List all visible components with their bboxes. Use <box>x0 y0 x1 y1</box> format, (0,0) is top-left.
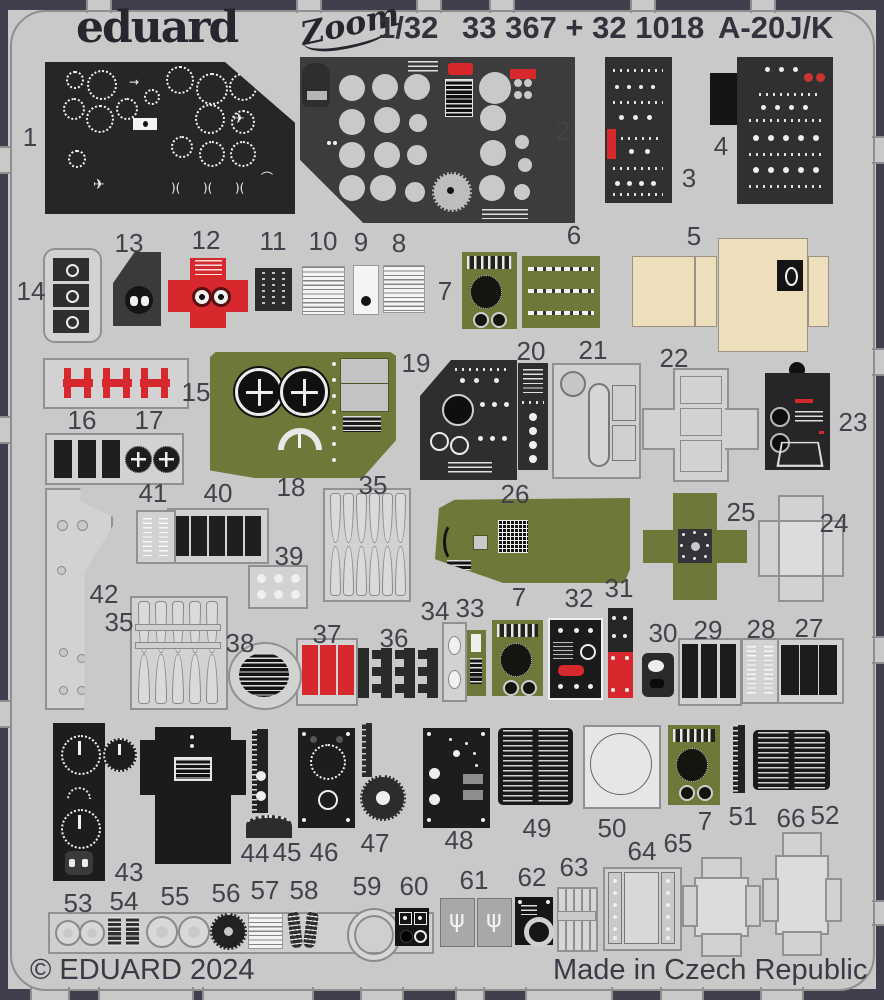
pe-part-36-clip <box>418 648 438 698</box>
knob-pair <box>800 645 818 695</box>
red-knob-pair <box>302 645 318 695</box>
part-number-label: 5 <box>687 223 701 249</box>
red-clamp <box>63 368 93 398</box>
part-number-label: 58 <box>290 877 319 903</box>
switch-dot <box>765 67 770 72</box>
door-plate <box>340 358 389 412</box>
dial-knob <box>125 446 152 473</box>
instrument-cutout <box>518 158 532 172</box>
fret-tab <box>360 987 404 1000</box>
knob <box>679 785 695 801</box>
switch-dot <box>775 105 780 110</box>
mini-arc <box>67 787 91 799</box>
placard-dot <box>361 296 371 306</box>
pe-part-52-66-data-placard <box>753 730 830 790</box>
pe-part-46-panel <box>298 728 355 828</box>
instrument-cutout <box>339 75 365 101</box>
part-number-label: 20 <box>517 338 546 364</box>
instrument-cutout <box>374 142 400 168</box>
oval-window <box>648 660 664 672</box>
red-lever <box>159 518 168 556</box>
stencil-text <box>523 369 543 393</box>
belt-crossbar <box>135 624 221 631</box>
switch-dot <box>504 402 509 407</box>
knob-pair <box>54 440 72 478</box>
gauge-dial-print <box>116 98 138 120</box>
part-number-label: 7 <box>438 278 452 304</box>
box-flap <box>778 573 824 602</box>
switch-dot <box>645 149 650 154</box>
pe-part-22-fold-box <box>642 368 757 478</box>
part-number-label: 1 <box>23 124 37 150</box>
pe-part-36-clip <box>395 648 415 698</box>
rivet-column <box>608 872 622 944</box>
part-number-label: 29 <box>694 617 723 643</box>
red-clamp <box>140 368 170 398</box>
toggle-row <box>749 185 821 188</box>
box-flap <box>762 878 779 922</box>
pe-part-50-cover-plate <box>583 725 661 809</box>
rivet <box>332 410 336 414</box>
part-number-label: 33 <box>456 595 485 621</box>
part-number-label: 3 <box>682 165 696 191</box>
pe-part-56-gear-disc <box>210 913 247 950</box>
instrument-cutout <box>514 184 530 200</box>
pe-part-12-control-unit <box>168 258 248 328</box>
pe-part-62-plate <box>515 897 553 945</box>
switch-dot <box>478 436 483 441</box>
button <box>529 441 537 449</box>
knob <box>521 680 537 696</box>
panel-dot <box>327 141 331 145</box>
switch-dot <box>639 85 643 89</box>
switch-dot <box>460 378 465 383</box>
pe-part-10-placard <box>302 266 345 315</box>
pe-part-44-mount <box>140 727 246 864</box>
dial-face <box>500 643 532 677</box>
box-body <box>775 855 829 935</box>
stencil-text <box>482 209 528 219</box>
belt-crossbar <box>135 642 221 649</box>
latch <box>650 679 664 688</box>
rivet <box>332 458 336 462</box>
pe-part-41-carrier <box>136 510 176 564</box>
pe-part-57-placard <box>248 912 283 949</box>
part-number-label: 12 <box>192 227 221 253</box>
instrument-cutout <box>479 72 511 104</box>
pe-part-5-box-body <box>718 238 808 352</box>
switch-dot <box>615 85 619 89</box>
scale-strip <box>528 267 594 271</box>
part-number-label: 39 <box>275 543 304 569</box>
switch-dot <box>793 67 798 72</box>
part-number-label: 38 <box>226 630 255 656</box>
pe-part-65-fold-box <box>682 855 758 954</box>
part-number-label: 65 <box>664 830 693 856</box>
part-number-label: 52 <box>811 802 840 828</box>
pe-part-54-plate <box>108 917 121 946</box>
instrument-cutout <box>372 74 398 100</box>
instrument-cutout <box>407 145 427 165</box>
box-body <box>778 520 824 577</box>
pe-part-11-console <box>255 268 292 311</box>
panel-dot <box>333 141 337 145</box>
part-number-label: 9 <box>354 229 368 255</box>
part-number-label: 35 <box>105 609 134 635</box>
pe-part-8-placard <box>383 265 425 313</box>
pe-part-4-switch-panel <box>737 57 833 204</box>
switch-dot <box>813 167 819 173</box>
horizon-band <box>307 91 327 100</box>
red-lamp <box>816 73 825 82</box>
part-number-label: 18 <box>277 474 306 500</box>
oval-hole <box>448 636 461 655</box>
pe-part-18-gauge-panel <box>210 352 396 478</box>
part-number-label: 51 <box>729 803 758 829</box>
gauge-dial-print <box>87 70 117 100</box>
switch-dot <box>633 115 638 120</box>
button <box>529 413 537 421</box>
part-number-label: 6 <box>567 222 581 248</box>
box-flap <box>745 885 761 927</box>
instrument-cutout <box>515 135 529 149</box>
red-placard <box>510 69 536 79</box>
part-number-label: 14 <box>17 278 46 304</box>
pe-part-5-flap <box>632 256 695 327</box>
instrument-cutout <box>479 175 505 201</box>
toggle-row <box>613 101 663 104</box>
toggle-row <box>749 119 821 122</box>
instrument-glyph-print: )( <box>171 182 180 194</box>
quadrant-red <box>608 652 633 698</box>
pe-part-66-fold-box <box>762 830 838 954</box>
part-number-label: 4 <box>714 133 728 159</box>
stencil-text <box>448 462 492 474</box>
knob-pair <box>102 440 120 478</box>
dial-mark <box>130 296 138 306</box>
part-number-label: 17 <box>135 407 164 433</box>
part-number-label: 60 <box>400 873 429 899</box>
main-knob <box>442 394 474 426</box>
pe-part-29-carrier <box>678 638 742 706</box>
switch-dot <box>803 105 808 110</box>
box-flap <box>725 408 759 450</box>
part-number-label: 45 <box>273 839 302 865</box>
pe-part-34-strip <box>442 622 467 702</box>
pe-part-13-bracket <box>113 252 161 326</box>
grid-placard <box>553 642 573 659</box>
part-number-label: 32 <box>565 585 594 611</box>
pe-part-20-switch-strip <box>518 363 548 470</box>
gray-slot <box>463 774 483 784</box>
box-flap <box>782 931 822 956</box>
button <box>529 427 537 435</box>
dial-dot <box>143 121 148 127</box>
knob <box>503 680 519 696</box>
pe-part-21-panel <box>552 363 641 479</box>
panel-center <box>624 872 659 944</box>
instrument-glyph-print: ⌒ <box>261 172 273 184</box>
pe-part-64-panel <box>603 867 682 951</box>
part-number-label: 27 <box>795 615 824 641</box>
toggle-row <box>455 368 510 371</box>
part-number-label: 35 <box>359 472 388 498</box>
dial-face <box>470 275 502 309</box>
pe-part-28-carrier <box>741 638 779 704</box>
part-number-label: 24 <box>820 510 849 536</box>
frame-cell <box>53 284 89 307</box>
hole-ring <box>560 371 586 397</box>
oval-hole <box>448 670 461 689</box>
pe-part-61-buckle-plate: ψ <box>477 898 512 947</box>
arc-gauge <box>278 428 322 450</box>
pe-part-3-switch-panel <box>605 57 672 203</box>
pe-part-36-clip <box>372 648 392 698</box>
stencil-text <box>195 260 222 276</box>
switch-dot <box>619 115 624 120</box>
red-mark <box>795 399 813 403</box>
arc-scale <box>443 522 465 562</box>
switch-dot <box>615 181 620 186</box>
instrument-glyph-print: )( <box>235 182 244 194</box>
knob <box>491 312 507 328</box>
subject-label: A-20J/K <box>718 12 833 43</box>
knob <box>770 407 790 427</box>
data-placard <box>445 79 473 117</box>
knob-pair <box>819 645 837 695</box>
link-rod <box>701 644 717 698</box>
toggle-row <box>621 137 663 140</box>
data-placard <box>447 560 471 570</box>
white-slot <box>471 634 481 652</box>
switch-dot <box>813 135 819 141</box>
switch-dot <box>753 135 759 141</box>
scale-strip <box>528 311 594 315</box>
toggle-row <box>759 93 819 96</box>
pe-part-59-ring-frame <box>347 908 401 962</box>
toggle-row <box>613 69 663 72</box>
part-number-label: 8 <box>392 230 406 256</box>
slot <box>588 383 610 467</box>
red-placard <box>448 63 473 75</box>
part-number-label: 19 <box>402 350 431 376</box>
knob <box>697 785 713 801</box>
circle-scribe <box>590 733 652 795</box>
fret-tab <box>760 987 804 1000</box>
pe-part-5-flap <box>808 256 829 327</box>
knob-pair <box>245 516 261 556</box>
pe-part-51-scale-strip <box>733 725 745 793</box>
fret-tab <box>872 136 884 164</box>
fret-tab <box>872 348 884 376</box>
part-number-label: 47 <box>361 830 390 856</box>
switch-dot <box>783 135 789 141</box>
pe-part-30-bracket <box>642 653 674 697</box>
hood-outline <box>776 442 823 467</box>
instrument-cutout <box>480 140 506 166</box>
pe-part-43-disc-gauge <box>103 738 137 772</box>
emblem <box>785 267 798 286</box>
instrument-cutout <box>370 175 396 201</box>
pe-part-63-comb <box>557 887 598 952</box>
gauge-dial-print <box>66 71 84 89</box>
pe-part-35-belt-comb <box>323 488 411 602</box>
fret-tab <box>455 987 485 1000</box>
instrument-cutout <box>409 114 427 132</box>
instrument-cutout <box>514 91 522 99</box>
part-number-label: 7 <box>512 584 526 610</box>
round-gauge <box>235 368 283 416</box>
switch-dot <box>789 105 794 110</box>
switch-dot <box>494 378 499 383</box>
pe-part-31-lever-quadrant <box>608 608 633 698</box>
quadrant-top <box>608 608 633 652</box>
eduard-logo: eduard <box>76 6 237 50</box>
pe-part-23-control-box <box>765 373 830 470</box>
rivet <box>332 378 336 382</box>
switch-dot <box>783 167 789 173</box>
pe-part-14-frame <box>43 248 102 343</box>
part-number-label: 15 <box>182 379 211 405</box>
part-number-label: 7 <box>698 808 712 834</box>
pe-part-7-radio-panel <box>492 620 543 696</box>
pe-part-5-emblem-plate <box>777 260 803 291</box>
dial-knob <box>153 446 180 473</box>
pe-part-39-carrier <box>248 565 308 609</box>
pe-part-40-carrier <box>167 508 269 564</box>
red-mark <box>819 431 824 434</box>
gauge-dial-print <box>171 136 193 158</box>
connector-comb <box>467 256 512 269</box>
part-number-label: 53 <box>64 890 93 916</box>
trim-dial-hub <box>447 187 454 194</box>
rivet <box>332 362 336 366</box>
pe-part-61-buckle-plate: ψ <box>440 898 475 947</box>
switch-dot <box>490 436 495 441</box>
pe-sheet-scan: eduard Zoom 1/32 33 367 + 32 1018 A-20J/… <box>0 0 884 1000</box>
data-placard <box>174 757 212 781</box>
red-placard <box>607 129 616 159</box>
part-number-label: 50 <box>598 815 627 841</box>
pe-part-54-plate <box>126 917 139 946</box>
switch-dot <box>474 378 479 383</box>
red-clamp <box>102 368 132 398</box>
switch-dot <box>779 67 784 72</box>
part-number-label: 44 <box>241 840 270 866</box>
scale-label: 1/32 <box>378 12 438 43</box>
pe-part-55-washer <box>178 916 210 948</box>
instrument-cutout <box>480 105 506 131</box>
red-knob-pair <box>338 645 354 695</box>
attitude-indicator-cutout <box>302 63 330 107</box>
pe-part-55-washer <box>146 916 178 948</box>
switch-dot <box>629 149 634 154</box>
switch-dot <box>647 115 652 120</box>
pe-part-33-strip <box>467 630 486 696</box>
part-number-label: 64 <box>628 838 657 864</box>
switch-dot <box>753 167 759 173</box>
switch-dot <box>768 167 774 173</box>
part-number-label: 37 <box>313 621 342 647</box>
rivet <box>332 394 336 398</box>
frame-cell <box>53 310 89 333</box>
fret-tab <box>30 987 70 1000</box>
cell-ring <box>414 930 427 943</box>
part-number-label: 42 <box>90 581 119 607</box>
box-flap <box>642 408 675 450</box>
part-number-label: 28 <box>747 616 776 642</box>
hub-plate <box>678 529 712 563</box>
link-rod <box>682 644 698 698</box>
pe-part-47-gear-disc <box>360 775 406 821</box>
part-number-label: 59 <box>353 873 382 899</box>
toggle-row <box>613 193 663 196</box>
part-number-label: 34 <box>421 598 450 624</box>
gauge-dial-print <box>199 141 225 167</box>
pe-part-7-radio-panel <box>462 252 517 329</box>
link-rod <box>720 644 736 698</box>
needle <box>78 741 81 755</box>
part-number-label: 49 <box>523 815 552 841</box>
round-gauge <box>280 368 328 416</box>
part-number-label: 54 <box>110 888 139 914</box>
pe-part-47-stem <box>362 723 372 777</box>
pe-part-53-ring <box>79 920 105 946</box>
part-number-label: 25 <box>727 499 756 525</box>
instrument-cutout <box>405 182 425 202</box>
needle <box>78 815 81 829</box>
dial-face <box>676 748 708 782</box>
rivet <box>332 442 336 446</box>
red-lever <box>747 646 756 694</box>
fret-tab <box>660 987 704 1000</box>
gauge-dial-print <box>86 105 114 133</box>
part-number-label: 57 <box>251 877 280 903</box>
pe-part-45-scale-strip <box>252 729 268 813</box>
fold-line <box>680 408 722 436</box>
catalog-number: 33 367 + 32 1018 <box>462 12 704 43</box>
pe-part-60-switch-plate <box>395 908 429 946</box>
part-number-label: 26 <box>501 481 530 507</box>
switch-dot <box>480 402 485 407</box>
instrument-glyph-print: ✈ <box>233 112 245 126</box>
oval-data-plate <box>239 653 289 697</box>
button <box>529 455 537 463</box>
gauge-dial-print <box>166 66 194 94</box>
fret-tab <box>98 987 194 1000</box>
pe-part-9-placard <box>353 265 379 315</box>
switch-block <box>65 851 93 875</box>
instrument-cutout <box>339 175 365 201</box>
toggle-row <box>613 167 663 170</box>
gauge-dial-print <box>63 98 85 120</box>
pe-part-35-belt-comb <box>130 596 228 710</box>
fold-line <box>612 385 636 421</box>
part-number-label: 2 <box>556 118 570 144</box>
red-lever <box>764 646 773 694</box>
knob-pair <box>227 516 243 556</box>
instrument-cutout <box>339 142 365 168</box>
pe-part-5-flap <box>695 256 717 327</box>
red-lever <box>143 518 152 556</box>
box-flap <box>682 885 698 927</box>
gauge-dial-print <box>144 89 160 105</box>
square-hole <box>473 535 488 550</box>
grommet <box>524 917 554 947</box>
knob-pair <box>191 516 207 556</box>
part-number-label: 56 <box>212 880 241 906</box>
part-number-label: 55 <box>161 883 190 909</box>
